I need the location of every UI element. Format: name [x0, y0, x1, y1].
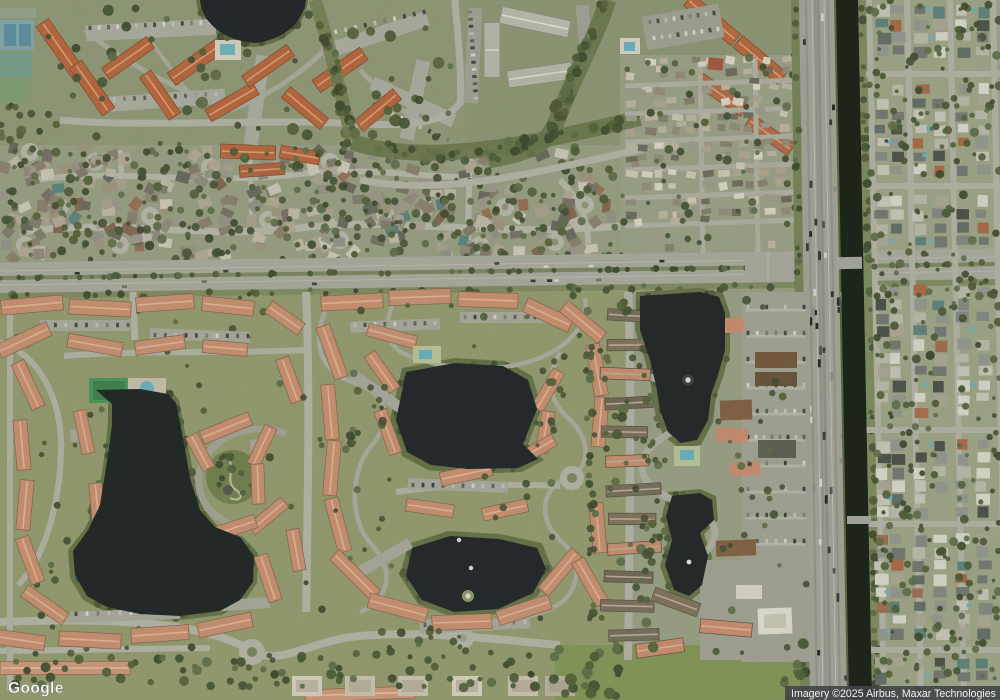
svg-text:Google: Google [8, 680, 64, 697]
svg-text:Imagery ©2025 Airbus, Maxar Te: Imagery ©2025 Airbus, Maxar Technologies [791, 688, 996, 700]
